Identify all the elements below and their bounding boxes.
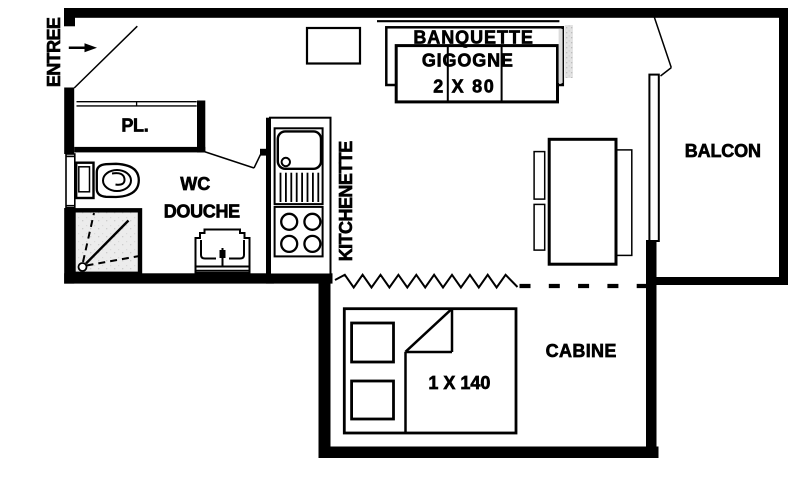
svg-text:BANQUETTE: BANQUETTE <box>413 27 534 47</box>
svg-text:WC: WC <box>180 174 210 194</box>
svg-text:PL.: PL. <box>121 116 148 136</box>
svg-text:DOUCHE: DOUCHE <box>164 202 240 222</box>
svg-text:KITCHENETTE: KITCHENETTE <box>336 141 356 261</box>
svg-text:CABINE: CABINE <box>546 341 617 361</box>
svg-text:2 X 80: 2 X 80 <box>433 76 495 96</box>
svg-text:1 X 140: 1 X 140 <box>428 373 490 393</box>
svg-text:GIGOGNE: GIGOGNE <box>422 50 514 70</box>
svg-text:ENTREE: ENTREE <box>44 17 64 87</box>
svg-text:BALCON: BALCON <box>685 141 761 161</box>
